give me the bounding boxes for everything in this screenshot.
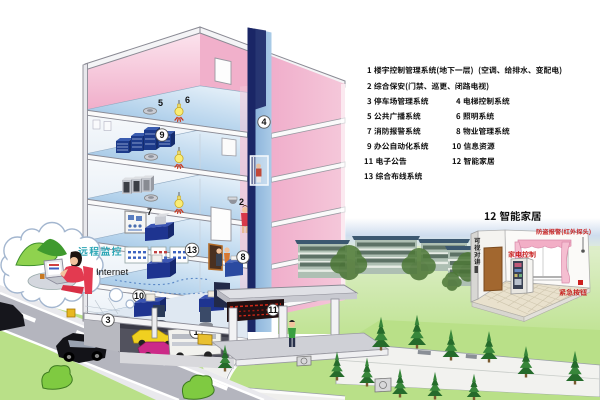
svg-text:2: 2: [239, 197, 244, 207]
svg-text:9: 9: [159, 130, 164, 140]
svg-text:11: 11: [268, 305, 278, 315]
svg-text:7: 7: [147, 207, 152, 217]
svg-text:Internet: Internet: [96, 267, 129, 278]
svg-text:5: 5: [158, 98, 163, 108]
svg-text:3: 3: [105, 315, 110, 325]
svg-text:6: 6: [185, 95, 190, 105]
svg-text:8: 8: [240, 252, 245, 262]
svg-text:13: 13: [187, 245, 197, 255]
svg-text:4: 4: [261, 117, 266, 127]
